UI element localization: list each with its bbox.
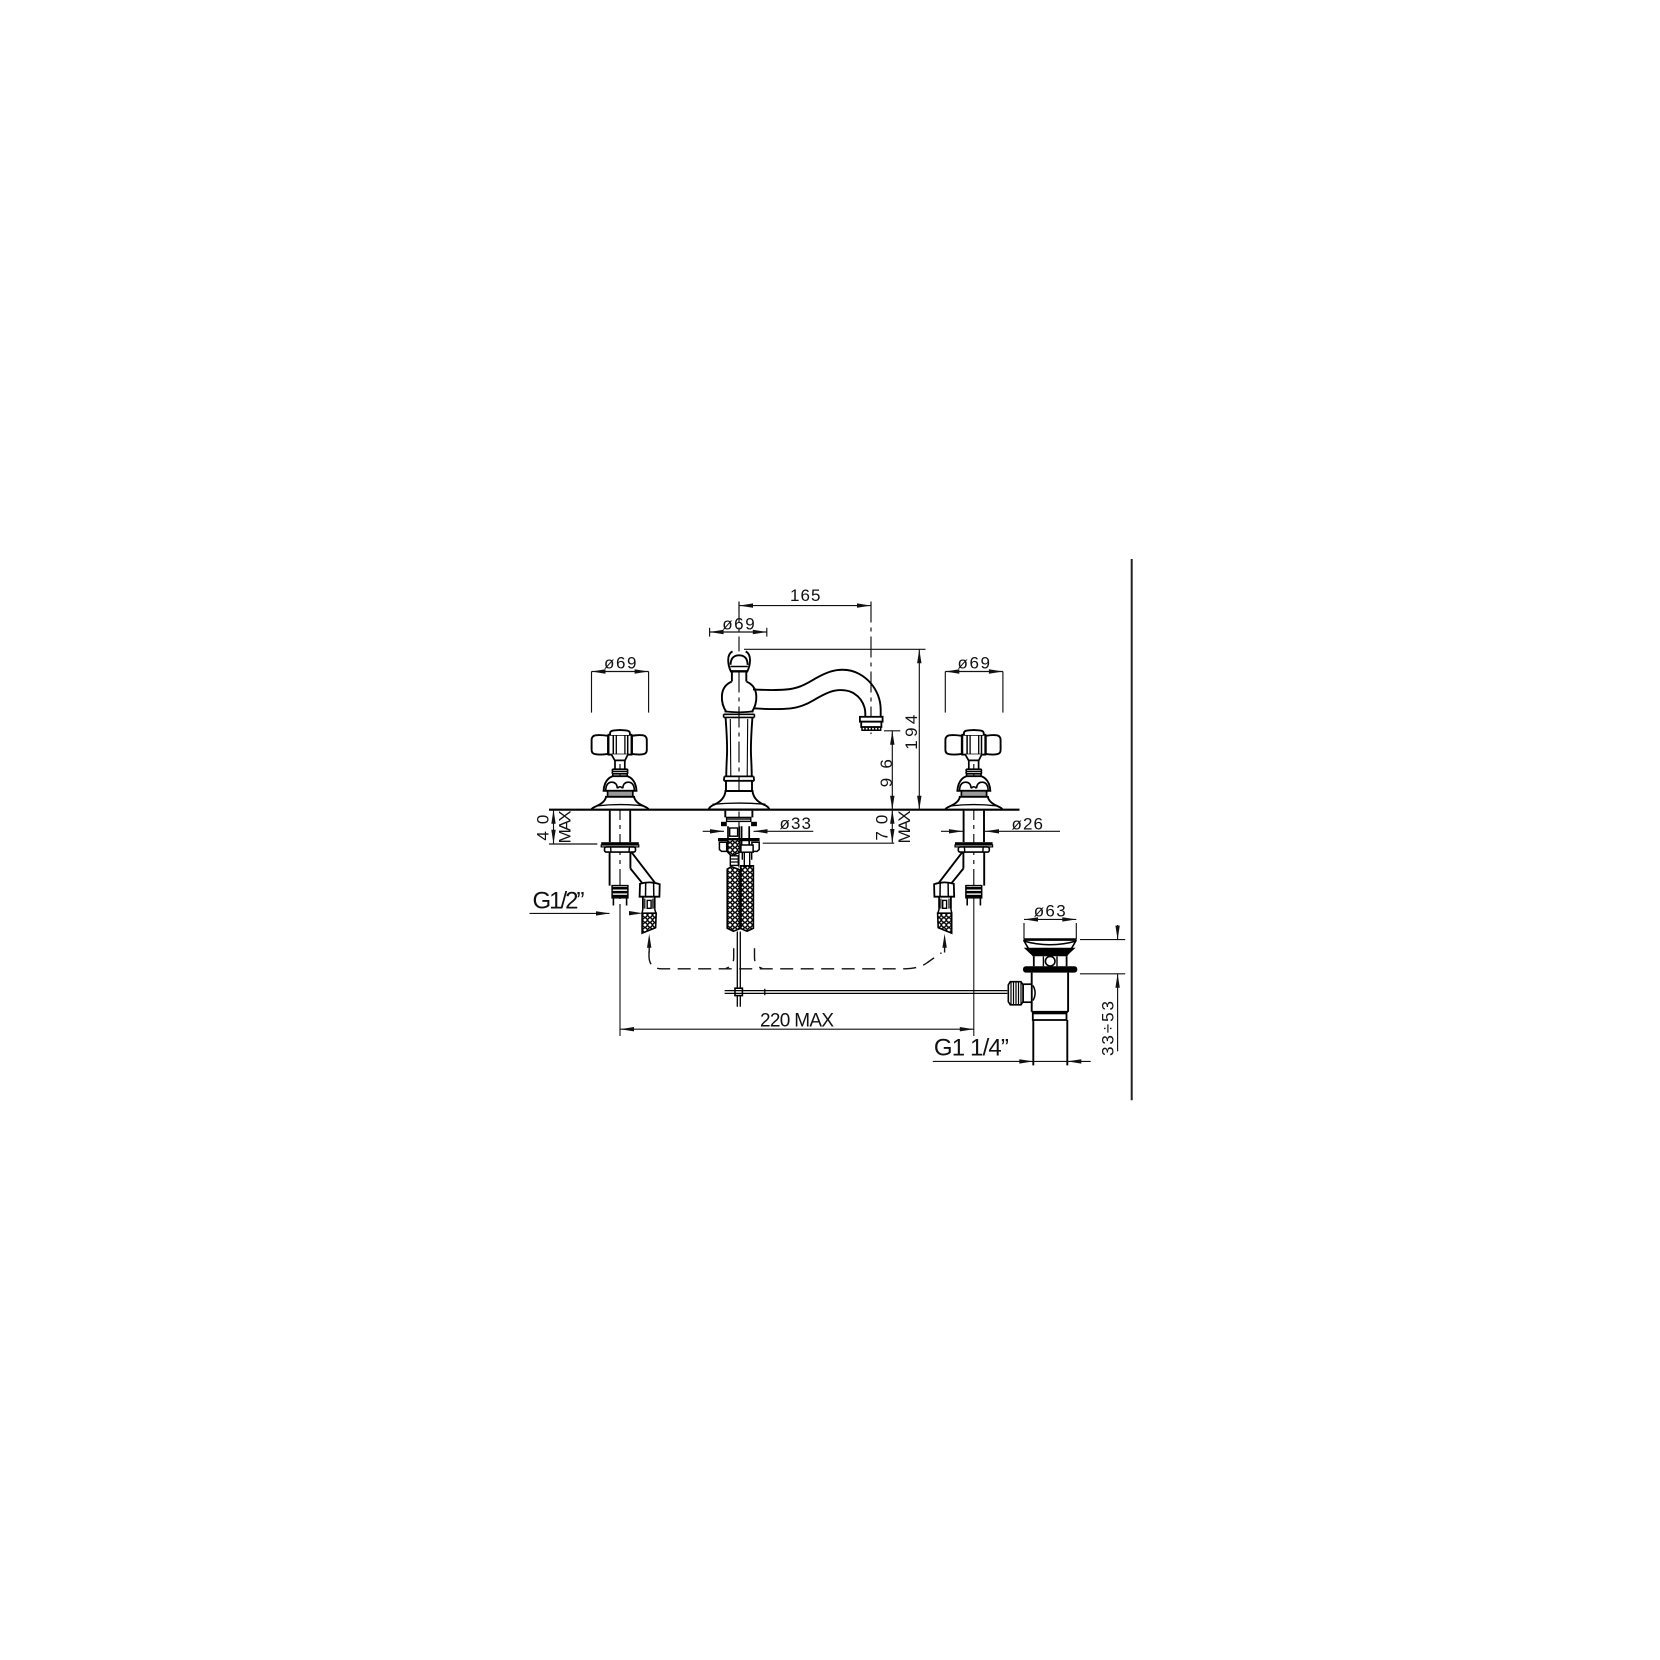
svg-text:ø69: ø69 xyxy=(604,653,637,672)
svg-text:220 MAX: 220 MAX xyxy=(760,1011,834,1032)
svg-text:MAX: MAX xyxy=(556,810,575,843)
svg-text:MAX: MAX xyxy=(895,810,914,843)
svg-text:ø26: ø26 xyxy=(1012,814,1044,833)
svg-text:G1 1/4”: G1 1/4” xyxy=(934,1035,1009,1062)
svg-text:ø63: ø63 xyxy=(1034,901,1066,920)
svg-text:ø69: ø69 xyxy=(958,653,991,672)
svg-text:G1/2”: G1/2” xyxy=(533,888,585,915)
svg-text:165: 165 xyxy=(790,586,821,605)
svg-text:33÷53: 33÷53 xyxy=(1099,1001,1118,1056)
svg-text:ø33: ø33 xyxy=(780,814,812,833)
svg-text:194: 194 xyxy=(902,715,921,750)
svg-text:ø69: ø69 xyxy=(722,615,755,634)
